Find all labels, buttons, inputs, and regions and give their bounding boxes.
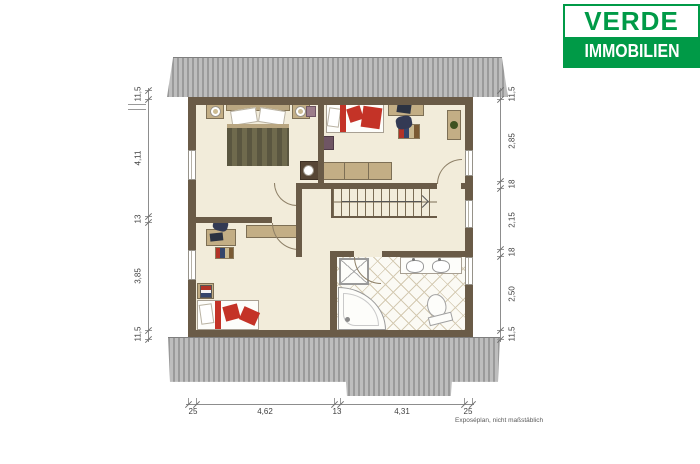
plant-stand-vase [303, 165, 314, 176]
wall-bath-north-b [382, 251, 467, 257]
dim-label: 3,85 [134, 268, 143, 284]
dim-label: 25 [189, 407, 198, 416]
dim-label: 11,5 [134, 87, 143, 102]
wall-hall-west [296, 183, 302, 257]
dim-label: 4,11 [134, 151, 143, 166]
dim-label: 11,5 [508, 327, 517, 342]
bedside-lamp-right [295, 106, 306, 117]
stairs-direction-line [342, 201, 422, 202]
bedside-lamp-left [210, 106, 221, 117]
bed1-red-runner [340, 104, 346, 132]
dim-extension-mark [128, 104, 146, 105]
logo-brand-top-text: VERDE [584, 6, 679, 37]
dim-label: 13 [333, 407, 342, 416]
wall-between-left-rooms [192, 217, 272, 223]
wall-top-rooms-south-b [461, 183, 467, 189]
desk2-laptop [210, 232, 224, 241]
logo-brand-bottom: IMMOBILIEN [565, 37, 698, 66]
wall-between-top-rooms [318, 103, 324, 185]
plant-icon [450, 121, 458, 129]
window-bath-right [465, 257, 473, 285]
sink-left [406, 260, 424, 273]
verde-immobilien-logo: VERDE IMMOBILIEN [563, 4, 700, 68]
wall-top-rooms-south-a [296, 183, 437, 189]
dim-line-right [500, 88, 501, 342]
footnote: Exposéplan, nicht maßstäblich [455, 417, 543, 424]
dim-label: 18 [508, 180, 517, 189]
decor-box [306, 106, 316, 117]
floor-plan-page: 11,5 4,11 13 3,85 11,5 11,5 2,85 18 2,15… [0, 0, 700, 464]
dim-label: 11,5 [508, 87, 517, 102]
bed2-red-runner [215, 301, 221, 329]
dim-label: 2,85 [508, 133, 517, 149]
dim-label: 2,15 [508, 212, 517, 228]
roof-band-bottom [168, 337, 500, 396]
outer-wall-top [188, 97, 473, 105]
dim-label: 13 [134, 215, 143, 224]
window-kidsroom2-left [188, 250, 196, 280]
dim-label: 18 [508, 248, 517, 257]
bed2-white-pillow [199, 303, 215, 325]
sink-right [432, 260, 450, 273]
logo-brand-bottom-text: IMMOBILIEN [584, 41, 679, 62]
sideboard-1 [320, 162, 392, 180]
dim-label: 2,50 [508, 286, 517, 302]
window-hall-right [465, 200, 473, 228]
logo-brand-top: VERDE [565, 6, 698, 37]
faucet-left-icon [412, 258, 415, 261]
dim-line-bottom [186, 404, 474, 405]
bed1-red-duvet [361, 106, 383, 129]
wall-bath-west [330, 251, 337, 337]
roof-band-top [167, 57, 508, 97]
dim-extension-mark [128, 109, 146, 110]
nightstand2-art [200, 285, 212, 298]
dim-label: 4,31 [394, 407, 410, 416]
window-kidsroom1-right [465, 150, 473, 176]
window-bedroom-left [188, 150, 196, 180]
bathtub-faucet-icon [345, 317, 350, 322]
dim-label: 4,62 [257, 407, 273, 416]
desk2-clutter [215, 247, 234, 259]
dim-label: 11,5 [134, 327, 143, 342]
faucet-right-icon [438, 258, 441, 261]
double-bed-duvet [227, 124, 289, 166]
dim-label: 25 [464, 407, 473, 416]
